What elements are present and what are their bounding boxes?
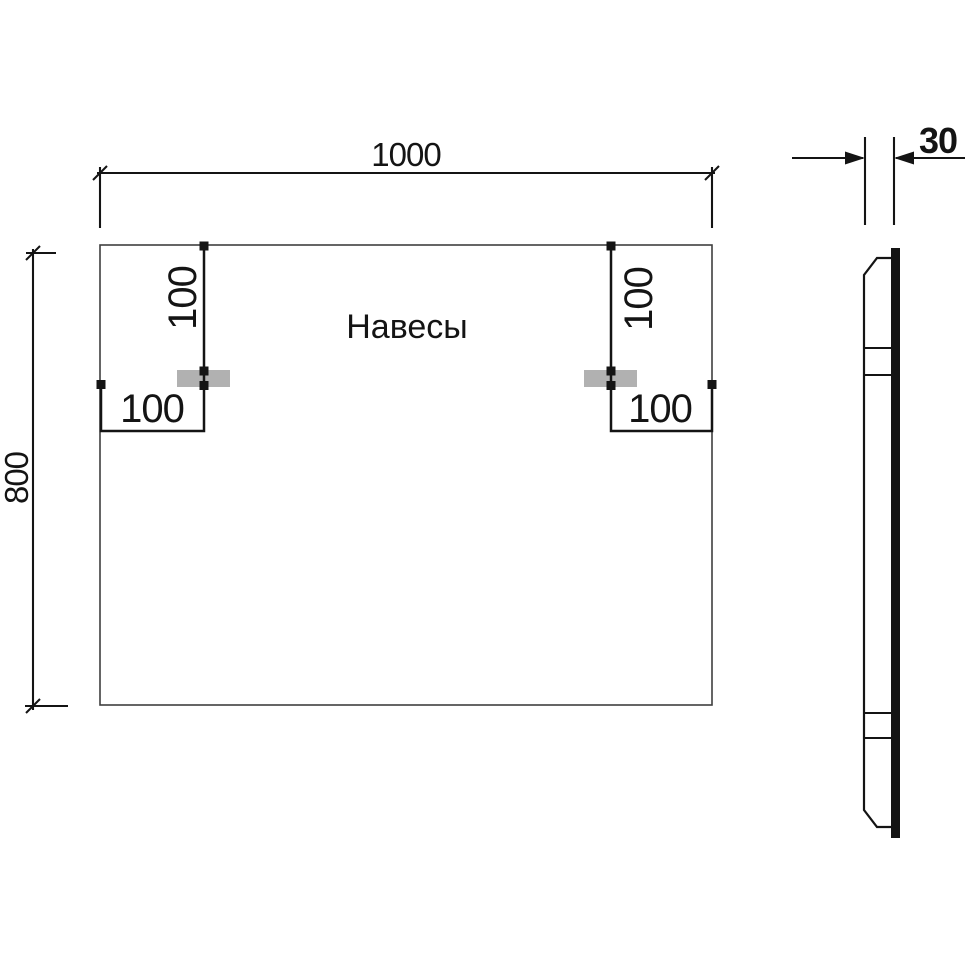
left-bracket-top-marker [200, 242, 209, 251]
left-bracket-group: 100 100 [97, 242, 231, 432]
right-bracket-lower-marker [607, 381, 616, 390]
hangers-caption: Навесы [346, 308, 468, 346]
arrow-right-icon [845, 152, 865, 165]
dimension-height-label: 800 [0, 451, 35, 504]
dimension-height: 800 [0, 246, 68, 713]
dimension-width: 1000 [93, 136, 719, 228]
arrow-left-icon [894, 152, 914, 165]
side-view-group [864, 248, 900, 838]
mirror-backing-profile [864, 258, 891, 827]
dimension-thickness-label: 30 [919, 120, 957, 161]
left-bracket-inset-label: 100 [120, 387, 184, 431]
left-edge-marker [97, 380, 106, 389]
right-bracket-group: 100 100 [584, 242, 717, 432]
left-bracket-upper-marker [200, 367, 209, 376]
mirror-glass-edge [891, 248, 900, 838]
right-bracket-top-marker [607, 242, 616, 251]
right-bracket-upper-marker [607, 367, 616, 376]
technical-drawing-canvas: 1000 800 Навесы 100 100 [0, 0, 965, 965]
mirror-mounting-drawing: 1000 800 Навесы 100 100 [0, 0, 965, 965]
right-bracket-drop-label: 100 [617, 267, 661, 331]
left-bracket-drop-label: 100 [161, 266, 205, 330]
dimension-width-label: 1000 [371, 136, 441, 173]
right-edge-marker [708, 380, 717, 389]
left-bracket-lower-marker [200, 381, 209, 390]
dimension-thickness: 30 [792, 120, 965, 225]
right-bracket-inset-label: 100 [628, 387, 692, 431]
